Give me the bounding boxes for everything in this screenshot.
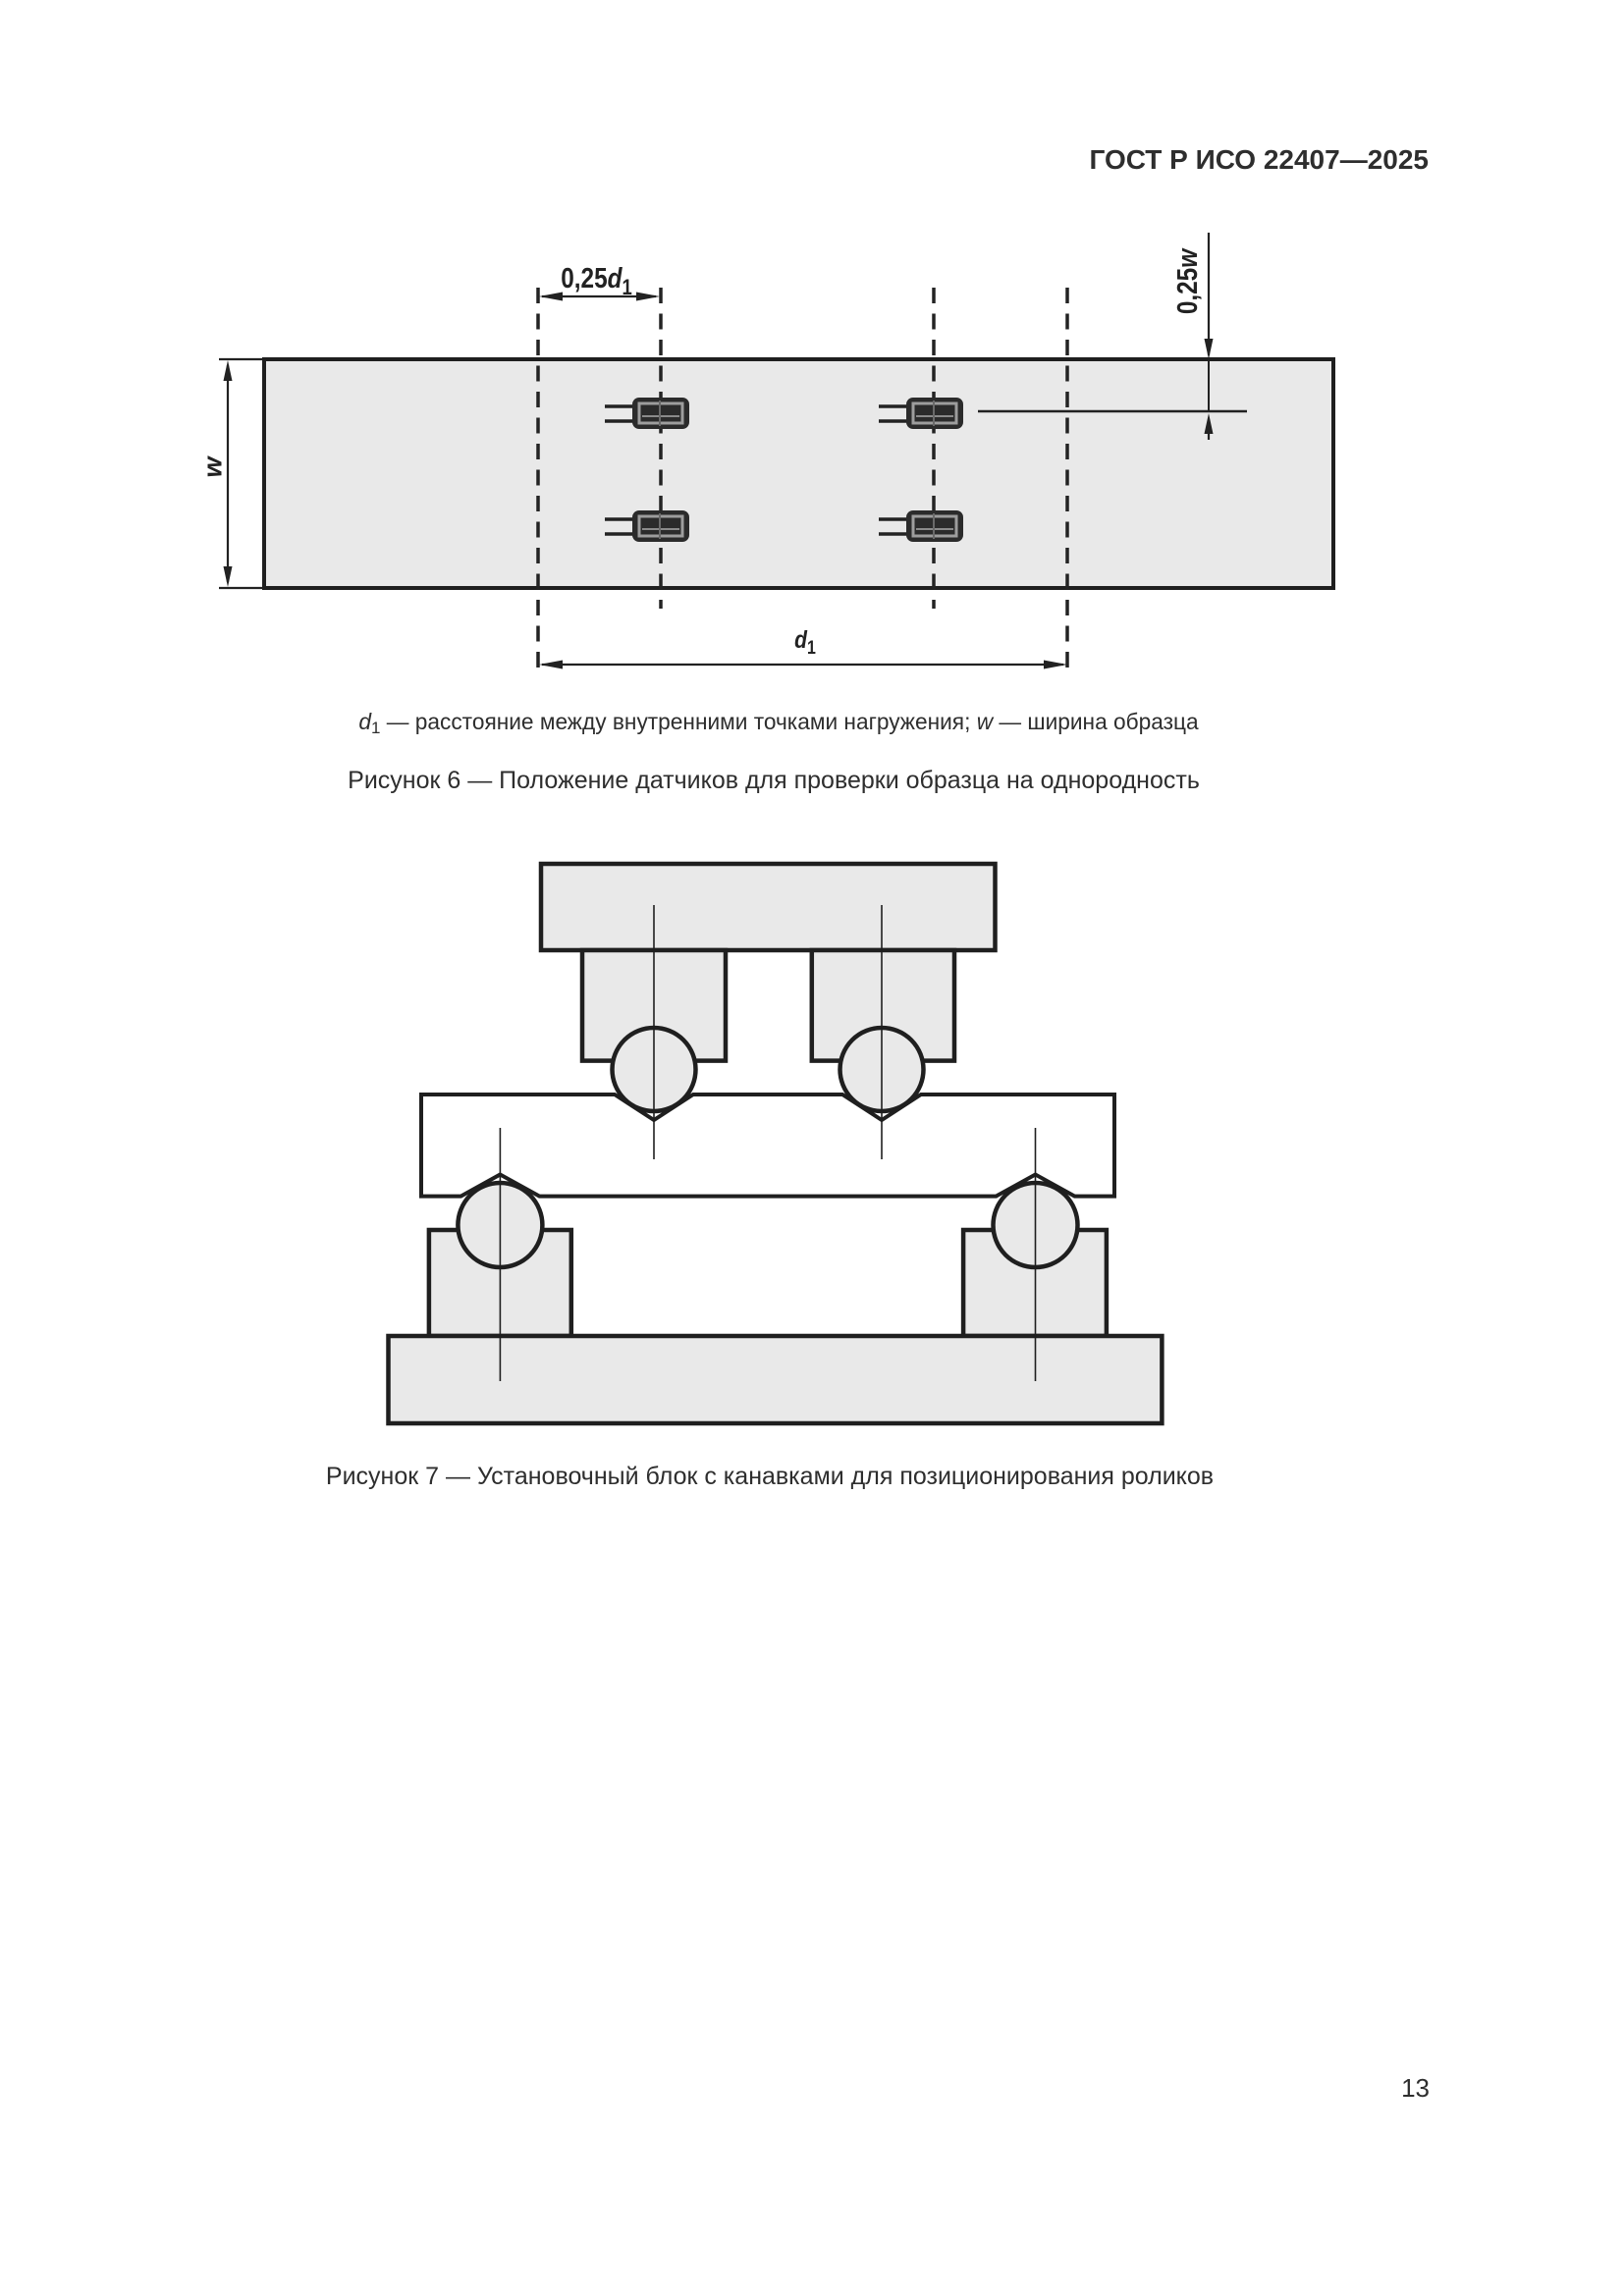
svg-text:w: w [198, 455, 228, 478]
svg-text:0,25d1: 0,25d1 [561, 262, 632, 299]
svg-text:0,25w: 0,25w [1171, 247, 1203, 314]
svg-text:d1: d1 [794, 625, 816, 658]
